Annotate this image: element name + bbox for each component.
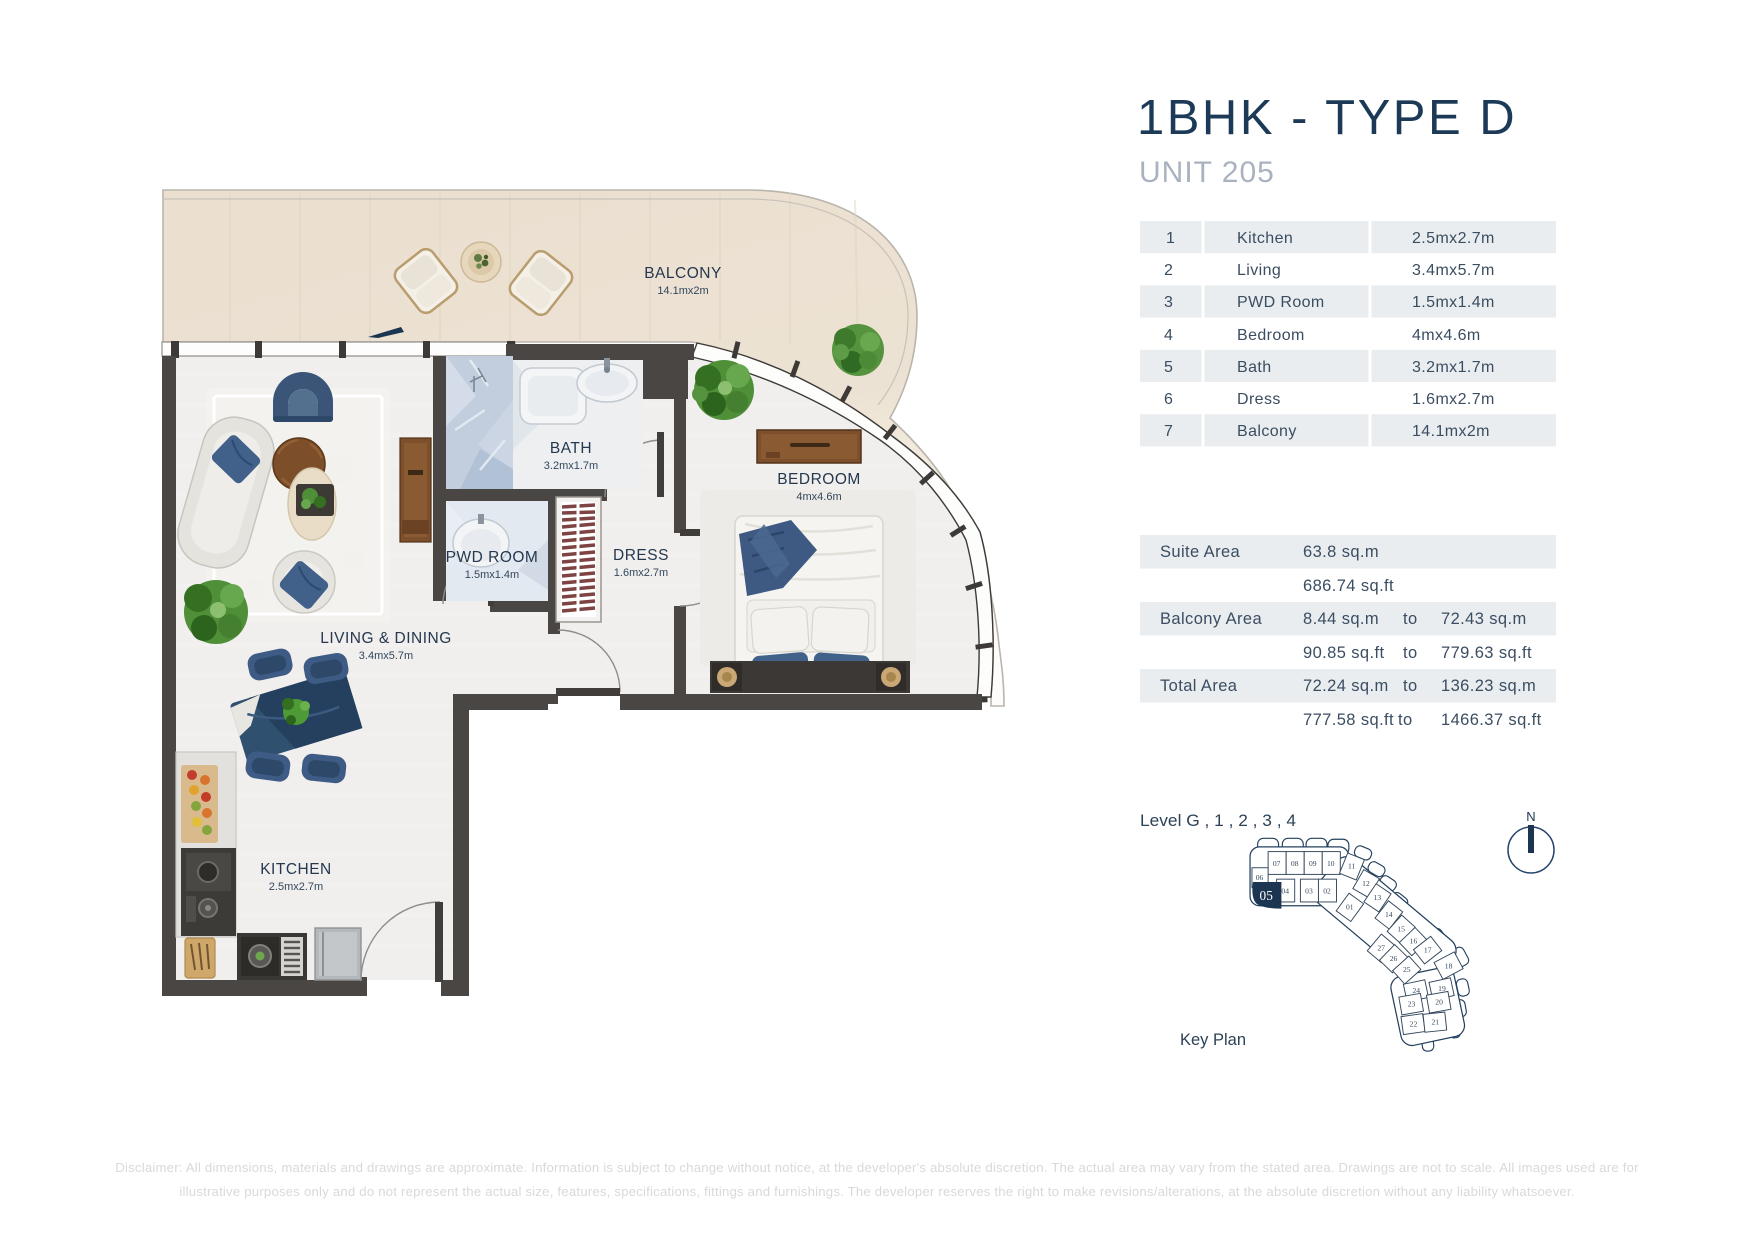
svg-text:Balcony Area: Balcony Area: [1160, 610, 1262, 628]
svg-text:Bedroom: Bedroom: [1237, 327, 1305, 344]
svg-text:BALCONY: BALCONY: [644, 265, 722, 282]
svg-text:BATH: BATH: [550, 440, 592, 457]
svg-text:5: 5: [1164, 359, 1173, 376]
svg-text:KITCHEN: KITCHEN: [260, 861, 332, 878]
svg-text:01: 01: [1346, 903, 1354, 912]
svg-text:777.58 sq.ft: 777.58 sq.ft: [1303, 711, 1394, 729]
svg-text:BEDROOM: BEDROOM: [777, 471, 861, 488]
svg-text:90.85 sq.ft: 90.85 sq.ft: [1303, 644, 1384, 662]
svg-text:16: 16: [1410, 937, 1418, 946]
svg-text:10: 10: [1327, 859, 1335, 868]
svg-text:4mx4.6m: 4mx4.6m: [796, 491, 841, 503]
svg-text:Dress: Dress: [1237, 391, 1281, 408]
svg-text:UNIT 205: UNIT 205: [1139, 156, 1275, 189]
svg-text:3.4mx5.7m: 3.4mx5.7m: [359, 650, 413, 662]
svg-text:23: 23: [1408, 999, 1416, 1008]
svg-text:to: to: [1403, 610, 1418, 628]
svg-text:3: 3: [1164, 294, 1173, 311]
svg-text:2.5mx2.7m: 2.5mx2.7m: [1412, 230, 1495, 247]
svg-text:27: 27: [1377, 943, 1385, 952]
svg-text:1BHK - TYPE D: 1BHK - TYPE D: [1137, 91, 1517, 145]
svg-text:63.8 sq.m: 63.8 sq.m: [1303, 543, 1379, 561]
svg-text:08: 08: [1291, 859, 1299, 868]
svg-text:07: 07: [1273, 859, 1281, 868]
svg-text:136.23 sq.m: 136.23 sq.m: [1441, 677, 1536, 695]
svg-text:1.5mx1.4m: 1.5mx1.4m: [465, 569, 519, 581]
svg-text:2.5mx2.7m: 2.5mx2.7m: [269, 881, 323, 893]
svg-text:Balcony: Balcony: [1237, 423, 1297, 440]
svg-text:Level G , 1 , 2 , 3 , 4: Level G , 1 , 2 , 3 , 4: [1140, 811, 1296, 830]
svg-text:1.6mx2.7m: 1.6mx2.7m: [614, 567, 668, 579]
svg-text:Key Plan: Key Plan: [1180, 1030, 1246, 1049]
svg-text:7: 7: [1164, 423, 1173, 440]
svg-text:6: 6: [1164, 391, 1173, 408]
svg-text:3.4mx5.7m: 3.4mx5.7m: [1412, 262, 1495, 279]
svg-text:1: 1: [1166, 230, 1175, 247]
svg-text:8.44 sq.m: 8.44 sq.m: [1303, 610, 1379, 628]
svg-text:14.1mx2m: 14.1mx2m: [657, 285, 708, 297]
svg-text:3.2mx1.7m: 3.2mx1.7m: [544, 460, 598, 472]
svg-text:Bath: Bath: [1237, 359, 1272, 376]
svg-text:06: 06: [1256, 873, 1264, 882]
svg-text:09: 09: [1309, 859, 1317, 868]
svg-text:PWD Room: PWD Room: [1237, 294, 1325, 311]
svg-text:2: 2: [1164, 262, 1173, 279]
svg-text:20: 20: [1435, 998, 1443, 1007]
svg-text:04: 04: [1281, 886, 1289, 895]
svg-text:1.5mx1.4m: 1.5mx1.4m: [1412, 294, 1495, 311]
svg-text:22: 22: [1410, 1019, 1418, 1028]
svg-text:3.2mx1.7m: 3.2mx1.7m: [1412, 359, 1495, 376]
svg-text:12: 12: [1362, 879, 1370, 888]
svg-text:PWD ROOM: PWD ROOM: [446, 549, 539, 566]
svg-text:to: to: [1398, 711, 1413, 729]
svg-text:Suite Area: Suite Area: [1160, 543, 1241, 561]
svg-text:72.43 sq.m: 72.43 sq.m: [1441, 610, 1527, 628]
svg-text:1.6mx2.7m: 1.6mx2.7m: [1412, 391, 1495, 408]
svg-text:19: 19: [1438, 984, 1446, 993]
svg-text:Living: Living: [1237, 262, 1281, 279]
svg-text:26: 26: [1390, 954, 1398, 963]
svg-text:4: 4: [1164, 327, 1173, 344]
svg-text:779.63 sq.ft: 779.63 sq.ft: [1441, 644, 1532, 662]
svg-text:02: 02: [1323, 886, 1331, 895]
svg-text:05: 05: [1260, 888, 1274, 903]
svg-text:686.74 sq.ft: 686.74 sq.ft: [1303, 577, 1394, 595]
svg-text:1466.37 sq.ft: 1466.37 sq.ft: [1441, 711, 1542, 729]
svg-text:15: 15: [1397, 924, 1405, 933]
svg-text:72.24 sq.m: 72.24 sq.m: [1303, 677, 1389, 695]
svg-text:24: 24: [1413, 986, 1421, 995]
svg-text:13: 13: [1374, 893, 1382, 902]
svg-text:illustrative purposes only and: illustrative purposes only and do not re…: [179, 1184, 1574, 1199]
svg-text:17: 17: [1424, 945, 1432, 954]
svg-text:Total Area: Total Area: [1160, 677, 1238, 695]
svg-text:LIVING & DINING: LIVING & DINING: [320, 630, 452, 647]
svg-text:03: 03: [1305, 886, 1313, 895]
svg-text:Kitchen: Kitchen: [1237, 230, 1293, 247]
svg-text:4mx4.6m: 4mx4.6m: [1412, 327, 1481, 344]
svg-text:14: 14: [1385, 910, 1393, 919]
svg-text:25: 25: [1403, 965, 1411, 974]
svg-text:N: N: [1526, 809, 1535, 824]
svg-text:21: 21: [1432, 1018, 1440, 1027]
svg-text:to: to: [1403, 644, 1418, 662]
svg-text:DRESS: DRESS: [613, 547, 669, 564]
svg-text:to: to: [1403, 677, 1418, 695]
svg-text:18: 18: [1445, 961, 1453, 970]
svg-text:Disclaimer: All dimensions, ma: Disclaimer: All dimensions, materials an…: [115, 1160, 1639, 1175]
svg-text:14.1mx2m: 14.1mx2m: [1412, 423, 1490, 440]
svg-text:11: 11: [1348, 862, 1356, 871]
